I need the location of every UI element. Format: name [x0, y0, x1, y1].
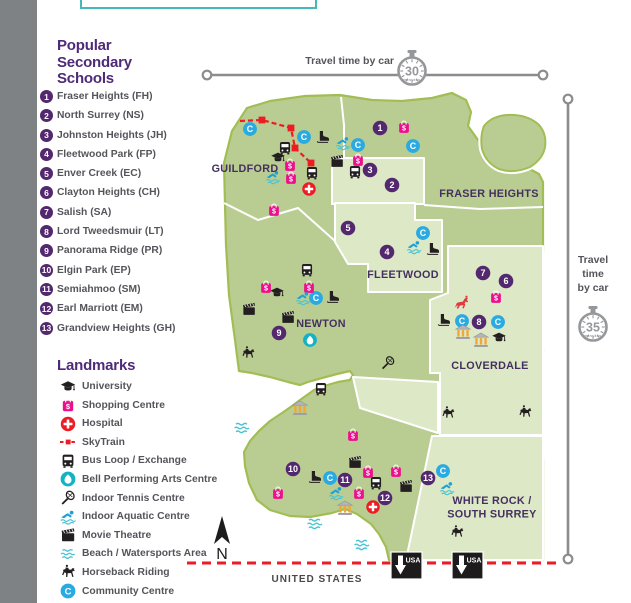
- skytrain-station-icon: [288, 125, 295, 132]
- page: { "schools": { "title_lines": ["Popular"…: [0, 0, 631, 603]
- school-marker-10: 10: [286, 462, 301, 477]
- community-icon: [297, 130, 311, 144]
- travel-side-label: by car: [578, 282, 609, 294]
- hospital-icon: [366, 500, 380, 514]
- waves-icon: [308, 519, 322, 528]
- svg-text:11: 11: [340, 475, 350, 485]
- travel-time-side: Travel time by car 35 minutes: [564, 95, 609, 564]
- svg-text:35: 35: [586, 321, 600, 335]
- region-label: WHITE ROCK /: [452, 495, 531, 507]
- school-marker-2: 2: [385, 178, 400, 193]
- svg-text:N: N: [216, 546, 228, 563]
- region-label: SOUTH SURREY: [447, 509, 537, 521]
- svg-text:USA: USA: [406, 558, 421, 565]
- hospital-icon: [302, 182, 316, 196]
- school-marker-7: 7: [476, 266, 491, 281]
- travel-side-label: Travel: [578, 254, 608, 266]
- svg-text:9: 9: [276, 328, 281, 338]
- community-icon: [309, 291, 323, 305]
- community-icon: [436, 464, 450, 478]
- region-label: FRASER HEIGHTS: [439, 188, 539, 200]
- community-icon: [351, 138, 365, 152]
- svg-text:1: 1: [377, 123, 382, 133]
- region-label: GUILDFORD: [212, 163, 279, 175]
- school-marker-13: 13: [421, 471, 436, 486]
- svg-text:5: 5: [345, 223, 350, 233]
- svg-text:30: 30: [405, 65, 419, 79]
- region-label: NEWTON: [296, 318, 346, 330]
- svg-text:8: 8: [476, 317, 481, 327]
- waves-icon: [355, 540, 369, 549]
- community-icon: [243, 122, 257, 136]
- svg-text:3: 3: [367, 165, 372, 175]
- school-marker-1: 1: [373, 121, 388, 136]
- svg-text:13: 13: [423, 473, 433, 483]
- svg-text:minutes: minutes: [403, 78, 420, 82]
- bus-icon: [316, 383, 326, 395]
- svg-text:10: 10: [288, 464, 298, 474]
- bus-icon: [371, 477, 381, 489]
- school-marker-5: 5: [341, 221, 356, 236]
- waves-icon: [235, 423, 249, 432]
- skytrain-station-icon: [308, 160, 315, 167]
- region-north-central: [332, 158, 424, 204]
- school-marker-11: 11: [338, 473, 353, 488]
- travel-side-label: time: [582, 268, 604, 280]
- skytrain-station-icon: [292, 145, 299, 152]
- school-marker-6: 6: [499, 274, 514, 289]
- region-label: FLEETWOOD: [367, 269, 439, 281]
- community-icon: [416, 226, 430, 240]
- travel-top-label: Travel time by car: [305, 55, 394, 67]
- svg-text:6: 6: [503, 276, 508, 286]
- school-marker-12: 12: [378, 491, 393, 506]
- stopwatch-30-icon: 30 minutes: [399, 50, 426, 85]
- usa-sign: USA: [391, 552, 422, 579]
- community-icon: [323, 471, 337, 485]
- bell-icon: [303, 333, 317, 347]
- svg-text:12: 12: [380, 493, 390, 503]
- map-island: [481, 115, 545, 171]
- stopwatch-35-icon: 35 minutes: [580, 306, 607, 341]
- svg-text:minutes: minutes: [584, 334, 601, 338]
- school-marker-9: 9: [272, 326, 287, 341]
- bus-icon: [280, 142, 290, 154]
- school-marker-3: 3: [363, 163, 378, 178]
- svg-text:4: 4: [384, 247, 389, 257]
- region-label: CLOVERDALE: [451, 360, 528, 372]
- bus-icon: [302, 264, 312, 276]
- svg-text:2: 2: [389, 180, 394, 190]
- surrey-map: $: [0, 0, 631, 603]
- community-icon: [491, 315, 505, 329]
- bus-icon: [350, 166, 360, 178]
- svg-text:USA: USA: [467, 558, 482, 565]
- community-icon: [406, 139, 420, 153]
- school-marker-4: 4: [380, 245, 395, 260]
- skytrain-station-icon: [259, 117, 266, 124]
- school-marker-8: 8: [472, 315, 487, 330]
- bus-icon: [307, 167, 317, 179]
- north-arrow-icon: N: [214, 516, 230, 563]
- travel-time-top: Travel time by car 30 minutes: [203, 50, 548, 85]
- usa-sign: USA: [452, 552, 483, 579]
- united-states-label: UNITED STATES: [272, 574, 363, 585]
- svg-text:7: 7: [480, 268, 485, 278]
